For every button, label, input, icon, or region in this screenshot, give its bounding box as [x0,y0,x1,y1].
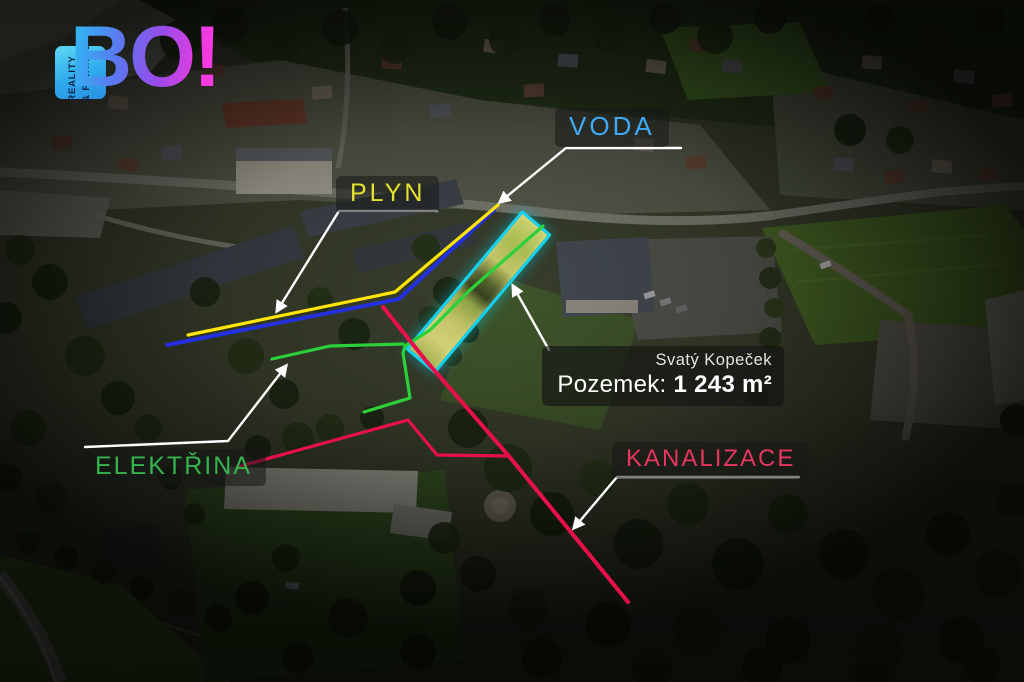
label-voda: VODA [555,108,669,147]
label-plyn: PLYN [336,176,439,213]
label-kanalizace: KANALIZACE [612,442,809,478]
plot-area: Pozemek:1 243 m² [554,371,772,399]
plot-info-box: Svatý Kopeček Pozemek:1 243 m² [542,346,784,406]
label-elektrina: ELEKTŘINA [81,449,266,486]
plot-area-value: 1 243 m² [674,371,772,398]
plot-area-label: Pozemek: [557,371,666,398]
plot-location: Svatý Kopeček [554,351,772,370]
aerial-photo: VODA PLYN ELEKTŘINA KANALIZACE Svatý Kop… [0,0,1024,682]
logo-wordmark: BO! [70,14,219,100]
